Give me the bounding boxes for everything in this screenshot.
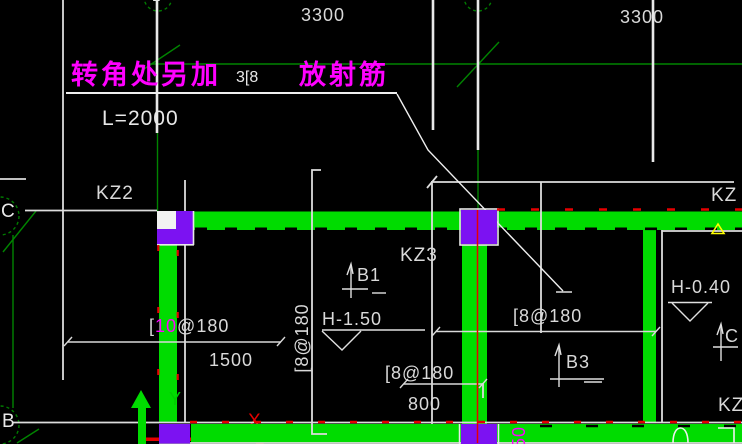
rebar-note-lower-8at180: [8@180 — [385, 364, 454, 382]
rebar-note-center-8at180: [8@180 — [513, 307, 582, 325]
column-label-kz-bottom: KZ — [718, 396, 742, 415]
grid-axis-label-c: C — [1, 202, 15, 221]
cad-drawing-canvas[interactable]: X — [0, 0, 742, 444]
length-note: L=2000 — [102, 108, 179, 129]
dim-1500: 1500 — [209, 351, 253, 369]
level-symbol-h150 — [322, 330, 425, 350]
ucs-y-axis-arrow — [131, 390, 151, 444]
column-label-kz-right: KZ — [711, 186, 737, 205]
beam-mark-b3: B3 — [566, 353, 590, 371]
rebar-num-highlight: 10 — [155, 316, 177, 336]
column-bottom-mid — [460, 424, 499, 444]
grid-axis-label-2: 2 — [472, 0, 480, 3]
grid-axis-label-b: B — [2, 412, 15, 431]
dim-rotated-50: 50 — [510, 419, 528, 444]
beam-mark-b1: B1 — [357, 266, 381, 284]
column-label-kz2: KZ2 — [96, 184, 134, 203]
grid-extension-lines-major — [157, 0, 653, 162]
column-bottom-left — [159, 424, 190, 444]
corner-note-text-left: 转角处另加 — [71, 62, 221, 89]
column-kz3 — [460, 209, 498, 245]
dim-800: 800 — [408, 395, 441, 413]
dim-span1-3300: 3300 — [301, 6, 345, 24]
level-label-h040: H-0.40 — [671, 278, 731, 296]
grid-green-lines — [3, 42, 742, 443]
rebar-suffix: @180 — [177, 316, 229, 336]
dim-span2-3300: 3300 — [620, 8, 664, 26]
level-label-h150: H-1.50 — [322, 310, 382, 328]
rebar-note-vertical-8at180: [8@180 — [293, 298, 311, 378]
beam-mark-c-right: C — [725, 327, 739, 345]
column-label-kz3: KZ3 — [400, 246, 438, 265]
rebar-note-10at180: [10@180 — [149, 317, 229, 335]
corner-note-text-right: 放射筋 — [299, 62, 389, 89]
level-symbol-h040 — [668, 303, 712, 322]
corner-note-rebar-size: 3[8 — [236, 70, 258, 86]
column-kz2 — [157, 211, 194, 245]
beam-right-vertical — [643, 230, 656, 423]
ucs-y-axis-label: Y — [169, 390, 181, 408]
grid-axis-label-1: 1 — [152, 0, 160, 4]
slab-outline-left — [312, 170, 327, 434]
